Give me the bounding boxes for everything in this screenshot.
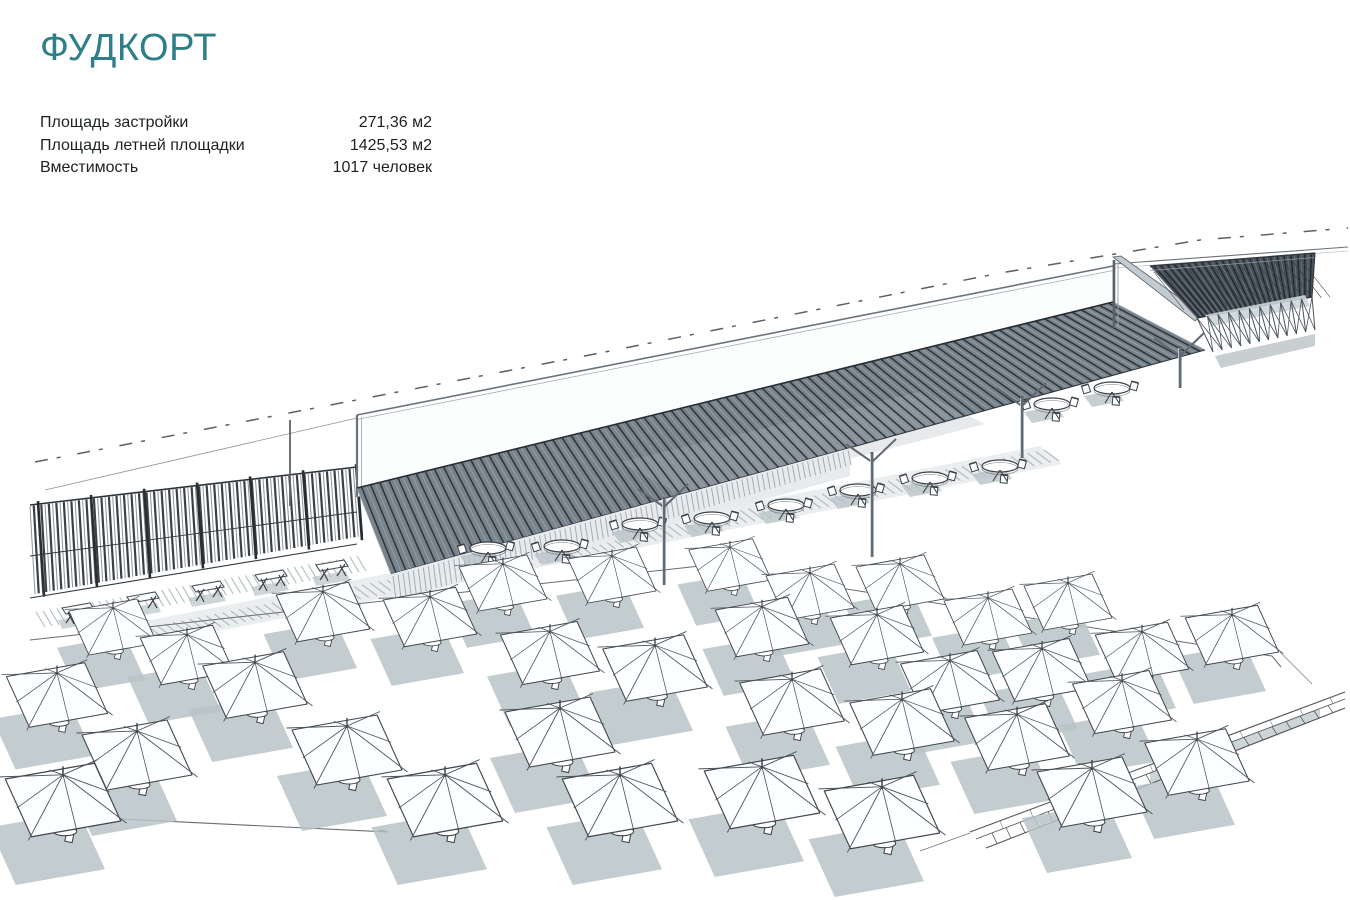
umbrella	[809, 772, 946, 897]
bench-table	[188, 581, 226, 607]
umbrella	[689, 752, 826, 877]
round-table	[1021, 397, 1078, 423]
umbrella	[1173, 602, 1284, 704]
umbrella	[372, 760, 509, 885]
umbrella	[277, 712, 408, 832]
slide-foodcourt: ФУДКОРТ Площадь застройки 271,36 м2 Площ…	[0, 0, 1350, 900]
umbrella	[371, 584, 482, 686]
bench-table	[251, 570, 289, 596]
back-rail-line	[45, 418, 357, 490]
umbrella	[547, 760, 684, 885]
round-table	[1081, 381, 1138, 407]
umbrella	[589, 631, 713, 745]
left-slat-fence	[30, 464, 362, 598]
foodcourt-axonometric-illustration	[0, 0, 1350, 900]
